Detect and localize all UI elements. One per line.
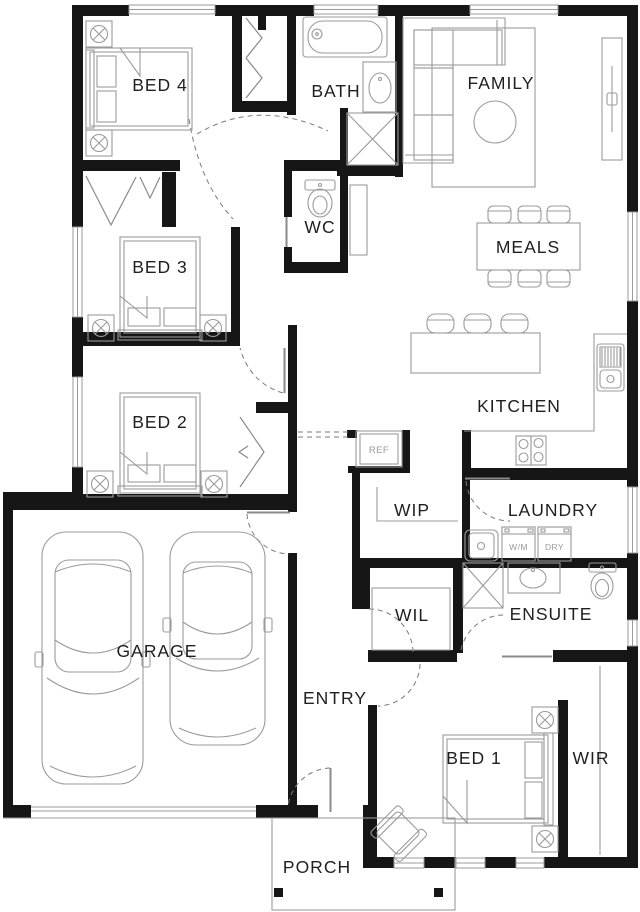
window: [73, 227, 82, 317]
family-room: [403, 18, 622, 187]
car-icon: [163, 532, 272, 745]
bifold-door: [239, 417, 264, 487]
room-label-wc: WC: [304, 217, 335, 237]
toilet-icon: [305, 180, 335, 217]
window: [470, 5, 558, 14]
bed3-room: [88, 237, 226, 341]
window: [516, 858, 544, 868]
door-swing: [189, 119, 233, 219]
coffee-table-icon: [474, 101, 516, 143]
cooktop-icon: [516, 436, 546, 465]
room-label-family: FAMILY: [468, 73, 535, 93]
tv-unit-icon: [602, 38, 622, 160]
linen-cupboard: [350, 185, 367, 255]
shower-icon: [347, 113, 398, 165]
island-bench-icon: [411, 333, 540, 373]
chair-icon: [518, 206, 541, 223]
room-label-bed3: BED 3: [132, 257, 188, 277]
door-swing: [240, 348, 283, 393]
floor-plan-svg: BED 4 BATH FAMILY WC MEALS BED 3 KITCHEN…: [0, 0, 640, 912]
bathtub-icon: [303, 17, 387, 57]
window: [628, 487, 637, 553]
room-label-garage: GARAGE: [117, 641, 198, 661]
garage-room: [31, 532, 272, 811]
door-swing: [461, 615, 505, 650]
window: [456, 858, 485, 868]
chair-icon: [547, 206, 570, 223]
bed2-room: [87, 393, 227, 497]
window: [628, 212, 637, 301]
porch-post: [434, 888, 443, 897]
appliance-label-dryer: DRY: [545, 542, 564, 552]
toilet-icon: [589, 563, 616, 599]
room-label-meals: MEALS: [496, 237, 560, 257]
stool-icon: [427, 314, 454, 333]
bed-icon: [118, 237, 202, 340]
downlight-icon: [86, 21, 112, 47]
door-swing: [466, 481, 510, 521]
downlight-icon: [532, 707, 558, 733]
window: [73, 377, 82, 467]
chair-icon: [488, 270, 511, 287]
chair-icon: [488, 206, 511, 223]
bifold-door: [86, 176, 160, 225]
window: [129, 5, 215, 14]
door-swing: [378, 664, 420, 706]
room-label-bed1: BED 1: [446, 748, 502, 768]
bed-icon: [443, 733, 553, 825]
shower-icon: [463, 563, 503, 608]
floor-plan: BED 4 BATH FAMILY WC MEALS BED 3 KITCHEN…: [0, 0, 640, 912]
bulkhead-line: [298, 432, 352, 437]
room-label-bed2: BED 2: [132, 412, 188, 432]
room-label-bed4: BED 4: [132, 75, 188, 95]
downlight-icon: [87, 471, 113, 497]
armchair-icon: [370, 805, 428, 863]
downlight-icon: [201, 471, 227, 497]
stool-icon: [464, 314, 491, 333]
room-label-bath: BATH: [311, 81, 360, 101]
chair-icon: [547, 270, 570, 287]
bed-icon: [118, 393, 202, 496]
kitchen-area: [356, 314, 627, 521]
door-swing: [247, 514, 289, 554]
room-label-wil: WIL: [395, 605, 429, 625]
room-label-wip: WIP: [394, 500, 430, 520]
door-swing: [197, 115, 328, 134]
porch-post: [274, 888, 283, 897]
sink-icon: [597, 344, 624, 391]
room-label-ensuite: ENSUITE: [510, 604, 593, 624]
room-label-laundry: LAUNDRY: [508, 500, 598, 520]
room-label-porch: PORCH: [283, 857, 351, 877]
window: [628, 620, 637, 646]
appliance-label-washing-machine: W/M: [509, 542, 528, 552]
downlight-icon: [86, 130, 112, 156]
vanity-basin-icon: [363, 62, 396, 112]
downlight-icon: [532, 826, 558, 852]
chair-icon: [518, 270, 541, 287]
window: [314, 5, 378, 14]
room-label-wir: WIR: [572, 748, 609, 768]
room-label-kitchen: KITCHEN: [477, 396, 561, 416]
stool-icon: [501, 314, 528, 333]
appliance-label-fridge: REF: [369, 445, 389, 456]
room-label-entry: ENTRY: [303, 688, 367, 708]
window: [394, 858, 424, 868]
